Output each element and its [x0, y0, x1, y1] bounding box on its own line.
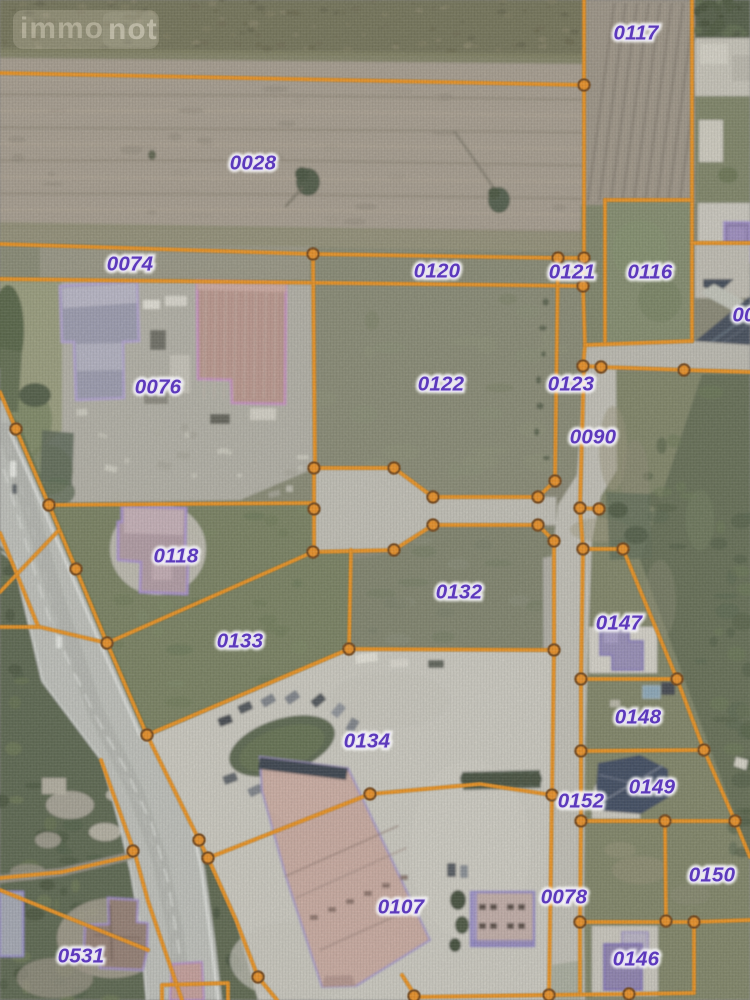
svg-text:0120: 0120 [414, 260, 461, 283]
svg-text:0122: 0122 [418, 373, 465, 396]
svg-text:0076: 0076 [135, 376, 182, 399]
svg-text:0134: 0134 [344, 730, 391, 753]
svg-text:0118: 0118 [154, 545, 199, 568]
svg-text:0074: 0074 [107, 253, 154, 276]
svg-text:0107: 0107 [378, 896, 426, 919]
svg-text:0028: 0028 [230, 152, 277, 175]
svg-text:0147: 0147 [596, 612, 644, 635]
svg-text:not: not [108, 13, 158, 46]
svg-text:immo: immo [20, 12, 104, 45]
svg-text:0121: 0121 [549, 261, 595, 284]
svg-text:0090: 0090 [570, 426, 617, 449]
svg-text:0148: 0148 [615, 706, 662, 729]
svg-text:0132: 0132 [436, 581, 483, 604]
svg-text:0117: 0117 [614, 22, 660, 45]
svg-text:0116: 0116 [628, 261, 673, 284]
svg-text:0150: 0150 [689, 864, 736, 887]
svg-text:0531: 0531 [58, 945, 104, 968]
svg-text:0133: 0133 [217, 630, 264, 653]
svg-text:0152: 0152 [558, 790, 605, 813]
svg-text:0146: 0146 [613, 948, 660, 971]
svg-text:0078: 0078 [541, 886, 588, 909]
svg-text:00: 00 [732, 304, 750, 327]
svg-text:0149: 0149 [629, 776, 676, 799]
svg-text:0123: 0123 [548, 373, 595, 396]
